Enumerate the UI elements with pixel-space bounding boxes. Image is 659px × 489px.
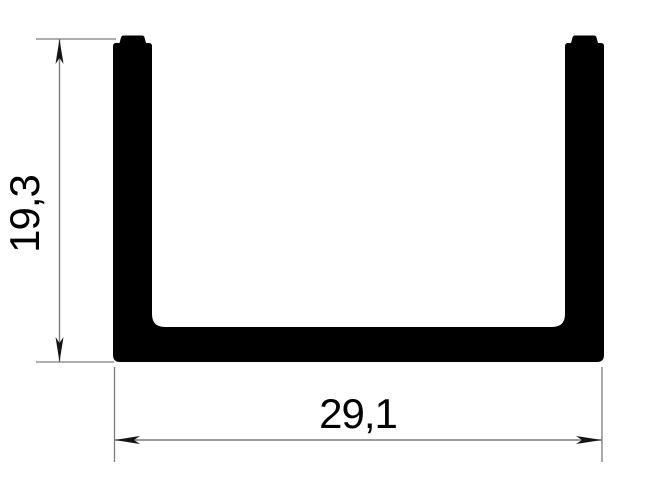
height-dimension-label: 19,3	[1, 175, 48, 253]
u-profile-shape	[113, 36, 604, 363]
technical-drawing: 19,3 29,1	[0, 0, 659, 489]
width-dimension-label: 29,1	[319, 390, 397, 437]
width-dimension: 29,1	[115, 367, 603, 462]
height-dimension: 19,3	[1, 39, 116, 362]
drawing-canvas: 19,3 29,1	[0, 0, 659, 489]
